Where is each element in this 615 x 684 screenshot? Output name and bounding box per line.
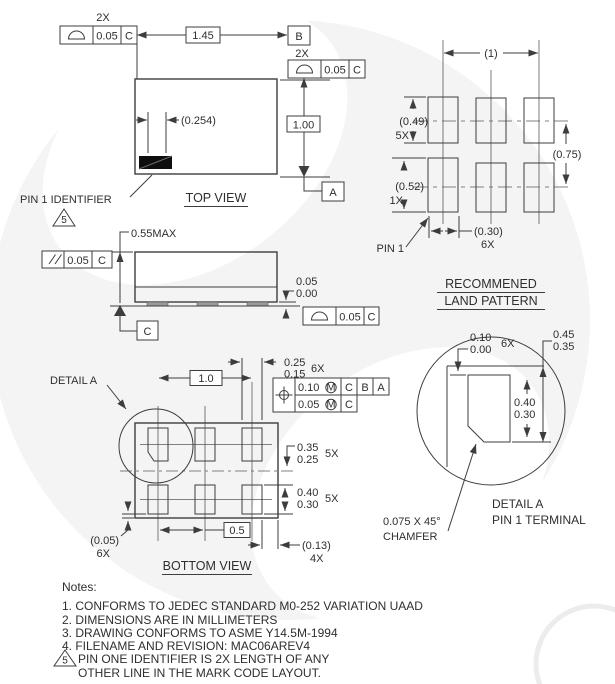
svg-text:5X: 5X: [325, 493, 339, 505]
note-5-line1: PIN ONE IDENTIFIER IS 2X LENGTH OF ANY: [78, 652, 329, 666]
svg-text:C: C: [144, 326, 152, 338]
svg-text:M: M: [326, 382, 335, 394]
svg-text:0.40: 0.40: [297, 487, 318, 499]
note-1: 1. CONFORMS TO JEDEC STANDARD M0-252 VAR…: [62, 599, 423, 613]
standoff-max: 0.05: [296, 276, 317, 288]
detail-a-title-1: DETAIL A: [492, 497, 543, 511]
note-4: 4. FILENAME AND REVISION: MAC06AREV4: [62, 639, 310, 653]
svg-text:C: C: [345, 399, 353, 411]
lead-stubs: [147, 302, 268, 306]
note-2: 2. DIMENSIONS ARE IN MILLIMETERS: [62, 613, 277, 627]
svg-text:B: B: [361, 382, 368, 394]
dim-land-row-pitch: (0.75): [553, 124, 582, 184]
registered-circle-icon: [536, 606, 615, 684]
fcf-right-tol: 0.05: [324, 65, 345, 77]
note-5-line2: OTHER LINE IN THE MARK CODE LAYOUT.: [78, 666, 321, 680]
fcf-seating-datum: C: [368, 312, 376, 324]
land-pin1-label: PIN 1: [376, 243, 404, 255]
svg-text:0.00: 0.00: [470, 344, 491, 356]
svg-text:5X: 5X: [396, 130, 410, 142]
svg-text:5: 5: [61, 215, 67, 226]
mmc-icon: M: [326, 382, 336, 394]
svg-text:(0.49): (0.49): [399, 116, 428, 128]
bottom-view-title: BOTTOM VIEW: [163, 559, 252, 573]
top-count-left: 2X: [96, 12, 110, 24]
svg-text:5: 5: [62, 656, 68, 667]
position-tol2: 0.05: [298, 399, 319, 411]
detail-a-callout: DETAIL A: [50, 375, 98, 387]
chamfer-callout-1: 0.075 X 45°: [383, 516, 441, 528]
svg-text:0.40: 0.40: [514, 397, 535, 409]
fcf-parallel-datum: C: [98, 255, 106, 267]
svg-text:1X: 1X: [390, 195, 404, 207]
standoff-min: 0.00: [296, 288, 317, 300]
svg-text:(0.52): (0.52): [395, 181, 424, 193]
svg-text:0.30: 0.30: [514, 409, 535, 421]
dim-height-value: 1.00: [293, 120, 314, 132]
svg-text:(1): (1): [484, 48, 497, 60]
dim-width-value: 1.45: [192, 30, 213, 42]
land-pattern-title-1: RECOMMENED: [445, 277, 537, 291]
svg-text:(0.75): (0.75): [553, 149, 582, 161]
package-drawing-sheet: R 2X 0.05 C 1.45 B 2X: [0, 0, 615, 684]
datum-c-flag: C: [137, 321, 158, 340]
dim-mark-width-value: (0.254): [181, 115, 216, 127]
position-tol1: 0.10: [298, 382, 319, 394]
drawing-svg: R 2X 0.05 C 1.45 B 2X: [0, 0, 615, 684]
pin1-identifier-mark: [139, 156, 172, 169]
chamfer-callout-2: CHAMFER: [383, 531, 437, 543]
svg-text:6X: 6X: [501, 338, 515, 350]
fcf-profile-left: 0.05 C: [60, 26, 137, 44]
svg-text:A: A: [329, 187, 337, 199]
fcf-seating: 0.05 C: [303, 307, 379, 325]
svg-text:(0.05): (0.05): [90, 535, 119, 547]
pin1-identifier-label: PIN 1 IDENTIFIER: [20, 194, 112, 206]
fcf-left-tol: 0.05: [96, 31, 117, 43]
fcf-right-datum: C: [353, 65, 361, 77]
fcf-seating-tol: 0.05: [339, 312, 360, 324]
mmc-icon: M: [326, 399, 336, 411]
fcf-parallelism: 0.05 C: [42, 251, 112, 268]
svg-text:6X: 6X: [97, 548, 111, 560]
land-pattern-title-2: LAND PATTERN: [444, 294, 537, 308]
svg-text:0.5: 0.5: [229, 525, 244, 537]
dim-max-height-value: 0.55MAX: [131, 228, 177, 240]
fcf-profile-right: 0.05 C: [288, 60, 365, 78]
svg-text:0.35: 0.35: [297, 442, 318, 454]
svg-text:M: M: [326, 399, 335, 411]
detail-a-title-2: PIN 1 TERMINAL: [492, 513, 586, 527]
svg-text:B: B: [295, 31, 302, 43]
svg-text:0.30: 0.30: [297, 499, 318, 511]
fcf-left-datum: C: [125, 31, 133, 43]
datum-a-flag: A: [322, 182, 344, 201]
dim-land-pitch-x: (1): [444, 48, 538, 60]
svg-text:(0.30): (0.30): [474, 226, 503, 238]
svg-text:(0.13): (0.13): [302, 540, 331, 552]
svg-text:1.0: 1.0: [198, 373, 213, 385]
svg-text:0.10: 0.10: [470, 332, 491, 344]
svg-text:4X: 4X: [310, 553, 324, 565]
datum-b-flag: B: [288, 26, 310, 45]
svg-text:0.35: 0.35: [553, 341, 574, 353]
note-3: 3. DRAWING CONFORMS TO ASME Y14.5M-1994: [62, 626, 338, 640]
fcf-parallel-tol: 0.05: [67, 255, 88, 267]
svg-text:0.25: 0.25: [297, 454, 318, 466]
top-view-title: TOP VIEW: [186, 191, 247, 205]
svg-text:0.45: 0.45: [553, 329, 574, 341]
svg-text:A: A: [377, 382, 385, 394]
svg-text:5X: 5X: [325, 448, 339, 460]
svg-text:0.25: 0.25: [284, 357, 305, 369]
svg-text:6X: 6X: [481, 239, 495, 251]
top-count-right: 2X: [295, 48, 309, 60]
notes-heading: Notes:: [62, 580, 97, 594]
svg-text:6X: 6X: [311, 363, 325, 375]
svg-text:C: C: [345, 382, 353, 394]
